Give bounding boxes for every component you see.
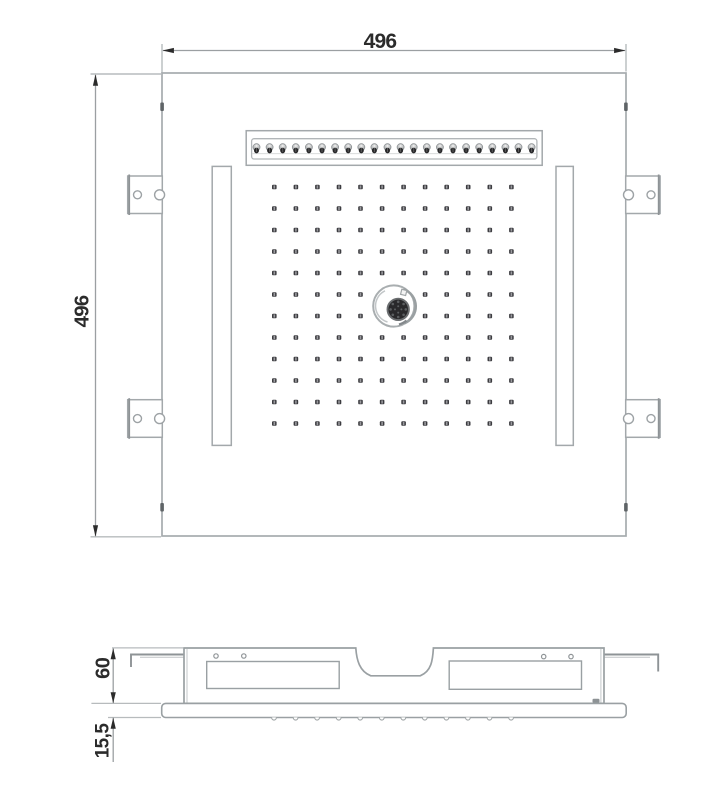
svg-text:496: 496 <box>71 295 94 327</box>
svg-text:60: 60 <box>93 657 115 679</box>
svg-text:496: 496 <box>364 30 397 53</box>
svg-text:15,5: 15,5 <box>92 723 113 759</box>
